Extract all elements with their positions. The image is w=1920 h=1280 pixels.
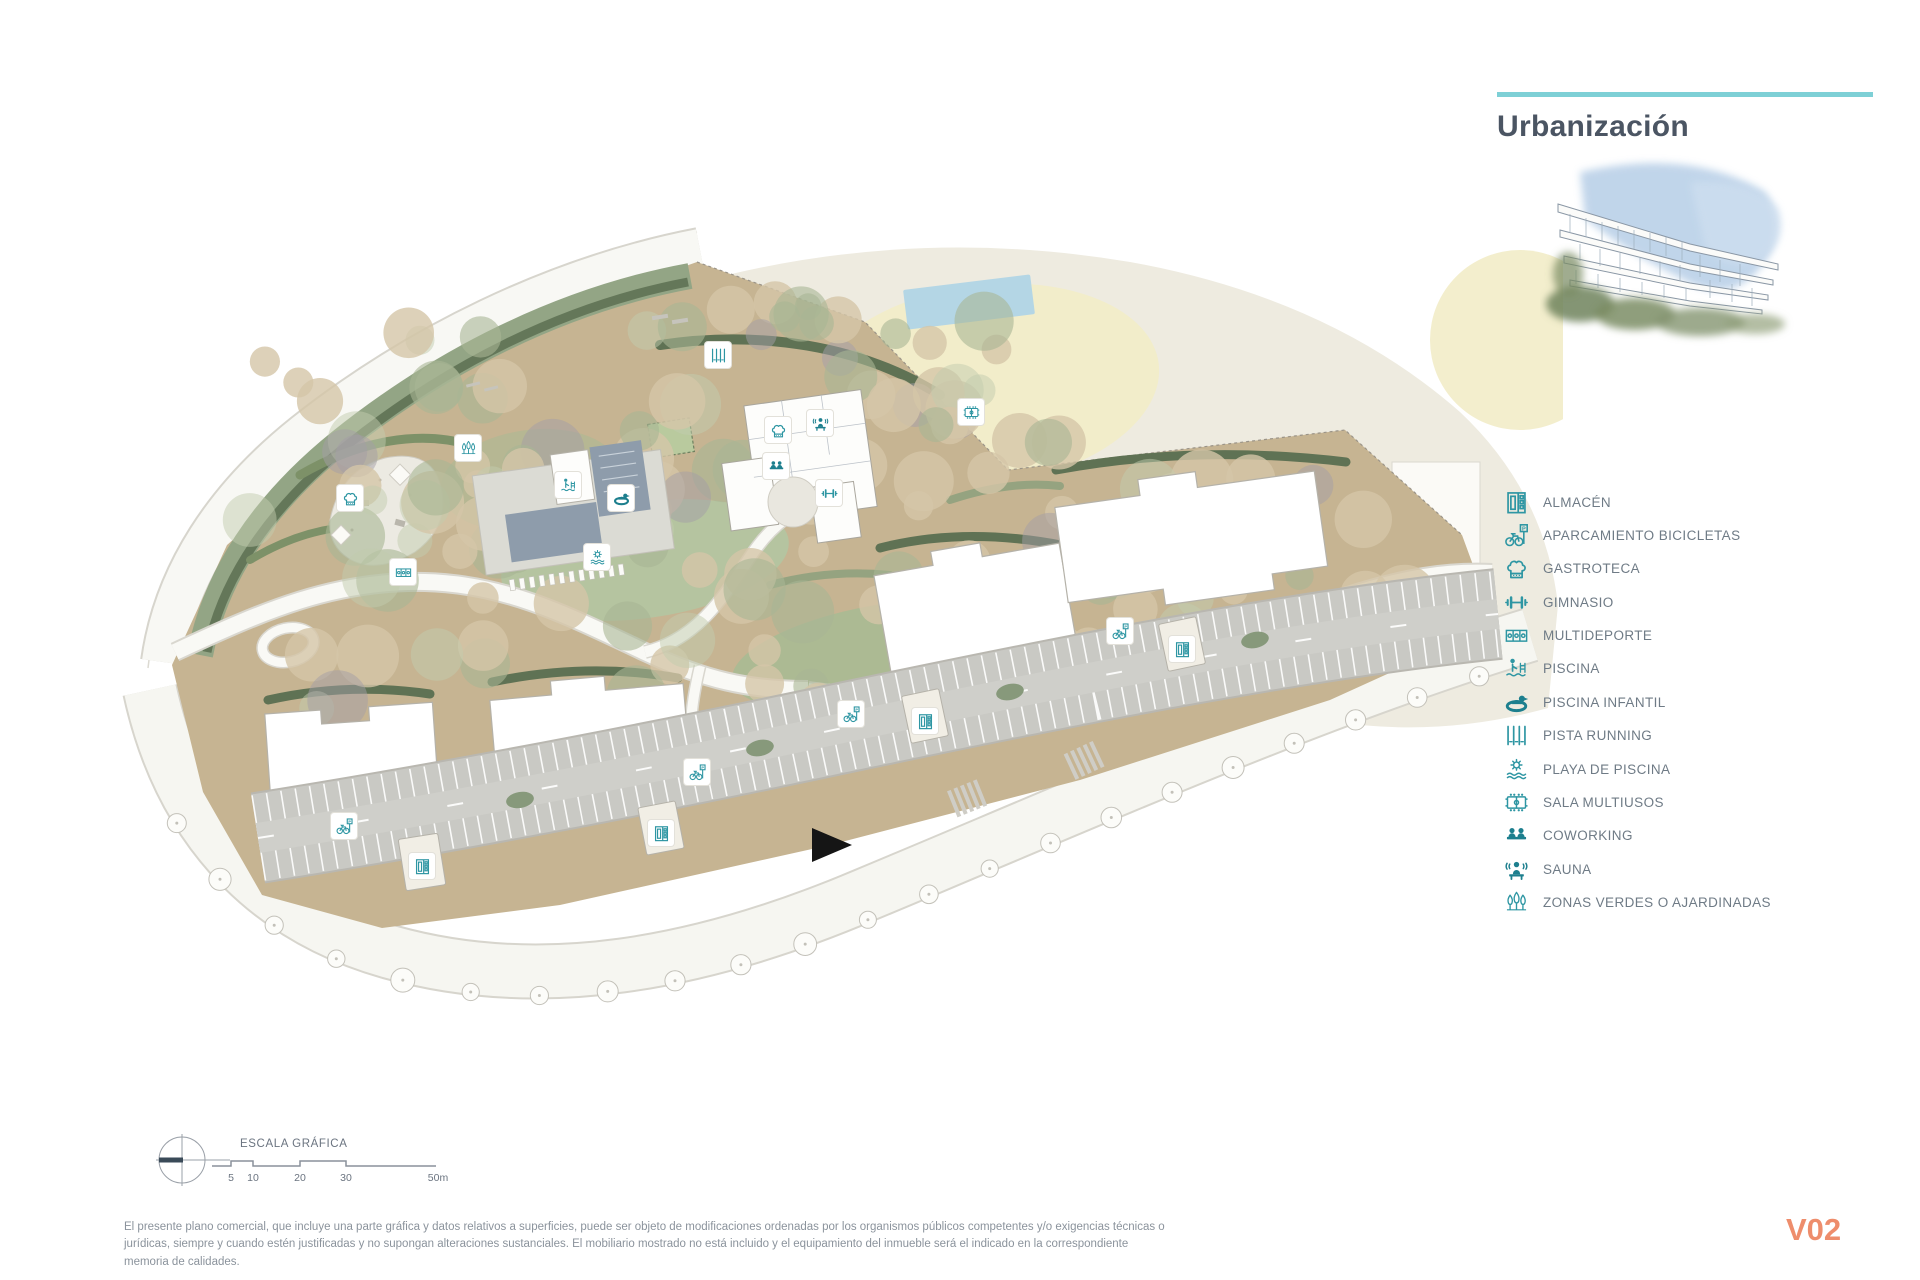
- legend-item-label: PISCINA INFANTIL: [1543, 695, 1666, 710]
- legend-item-label: GIMNASIO: [1543, 595, 1614, 610]
- sauna-icon: [811, 414, 830, 433]
- gastroteca-icon: [769, 421, 788, 440]
- bike-parking-icon: [335, 817, 354, 836]
- almacen-icon: [916, 712, 935, 731]
- sala-multiusos-map-icon: [958, 399, 984, 425]
- almacen-map-icon: [912, 708, 938, 734]
- almacen-icon: [652, 824, 671, 843]
- accent-rule: [1497, 92, 1873, 97]
- legend-item-label: PISCINA: [1543, 661, 1600, 676]
- legend-item: APARCAMIENTO BICICLETAS: [1503, 522, 1903, 548]
- legend-item-label: SAUNA: [1543, 862, 1592, 877]
- legend-item-label: PISTA RUNNING: [1543, 728, 1652, 743]
- version-label: V02: [1786, 1212, 1841, 1248]
- north-compass: [156, 1134, 230, 1186]
- gimnasio-icon: [1503, 589, 1530, 616]
- sala-multiusos-icon: [1503, 789, 1530, 816]
- bike-parking-icon: [842, 705, 861, 724]
- bike-parking-map-icon: [331, 813, 357, 839]
- legend-item: PISTA RUNNING: [1503, 723, 1903, 749]
- piscina-icon: [1503, 655, 1530, 682]
- scale-block: ESCALA GRÁFICA 5 10 20 30 50m: [100, 1118, 520, 1208]
- scale-tick: 10: [247, 1172, 259, 1184]
- bike-parking-map-icon: [838, 701, 864, 727]
- multideporte-icon: [1503, 622, 1530, 649]
- legend-item-label: GASTROTECA: [1543, 561, 1640, 576]
- zonas-verdes-icon: [459, 439, 478, 458]
- legend-item: MULTIDEPORTE: [1503, 623, 1903, 649]
- bike-parking-map-icon: [1107, 618, 1133, 644]
- piscina-infantil-map-icon: [608, 485, 634, 511]
- coworking-map-icon: [763, 453, 789, 479]
- piscina-infantil-icon: [612, 489, 631, 508]
- zonas-verdes-icon: [1503, 889, 1530, 916]
- sala-multiusos-icon: [962, 403, 981, 422]
- legend-item: ZONAS VERDES O AJARDINADAS: [1503, 890, 1903, 916]
- legend-item: GIMNASIO: [1503, 589, 1903, 615]
- scale-title: ESCALA GRÁFICA: [240, 1138, 347, 1150]
- pista-running-icon: [709, 346, 728, 365]
- legend-item-label: APARCAMIENTO BICICLETAS: [1543, 528, 1741, 543]
- disclaimer-text: El presente plano comercial, que incluye…: [124, 1219, 1176, 1271]
- legend-item: SALA MULTIUSOS: [1503, 790, 1903, 816]
- multideporte-map-icon: [390, 559, 416, 585]
- legend-item: COWORKING: [1503, 823, 1903, 849]
- almacen-map-icon: [648, 820, 674, 846]
- building-rendering: [1540, 152, 1816, 358]
- gastroteca-map-icon: [337, 485, 363, 511]
- almacen-map-icon: [1169, 636, 1195, 662]
- gastroteca-icon: [1503, 555, 1530, 582]
- gimnasio-map-icon: [816, 480, 842, 506]
- legend-item-label: PLAYA DE PISCINA: [1543, 762, 1670, 777]
- scale-tick: 5: [228, 1172, 234, 1184]
- scale-bar: [212, 1161, 436, 1166]
- gastroteca-icon: [341, 489, 360, 508]
- gimnasio-icon: [820, 484, 839, 503]
- legend-item: ALMACÉN: [1503, 489, 1903, 515]
- legend-item-label: ZONAS VERDES O AJARDINADAS: [1543, 895, 1771, 910]
- legend-item-label: SALA MULTIUSOS: [1543, 795, 1664, 810]
- legend-item: PISCINA: [1503, 656, 1903, 682]
- petanque-circle: [768, 477, 818, 527]
- almacen-icon: [413, 857, 432, 876]
- bike-parking-icon: [688, 763, 707, 782]
- page-title: Urbanización: [1497, 110, 1689, 144]
- almacen-map-icon: [409, 853, 435, 879]
- bike-parking-icon: [1503, 522, 1530, 549]
- legend: ALMACÉN APARCAMIENTO BICICLETAS GASTROTE…: [1503, 489, 1903, 923]
- almacen-icon: [1503, 489, 1530, 516]
- legend-item-label: MULTIDEPORTE: [1543, 628, 1652, 643]
- scale-tick: 50m: [428, 1172, 448, 1184]
- gastroteca-map-icon: [765, 417, 791, 443]
- coworking-icon: [1503, 822, 1530, 849]
- piscina-infantil-icon: [1503, 689, 1530, 716]
- pista-running-map-icon: [705, 342, 731, 368]
- playa-piscina-icon: [588, 548, 607, 567]
- legend-item-label: ALMACÉN: [1543, 495, 1611, 510]
- legend-item: PLAYA DE PISCINA: [1503, 756, 1903, 782]
- playa-piscina-icon: [1503, 756, 1530, 783]
- sauna-icon: [1503, 856, 1530, 883]
- pista-running-icon: [1503, 722, 1530, 749]
- sauna-map-icon: [807, 410, 833, 436]
- legend-item: SAUNA: [1503, 856, 1903, 882]
- legend-item: PISCINA INFANTIL: [1503, 689, 1903, 715]
- coworking-icon: [767, 457, 786, 476]
- zonas-verdes-map-icon: [455, 435, 481, 461]
- multideporte-icon: [394, 563, 413, 582]
- playa-piscina-map-icon: [584, 544, 610, 570]
- piscina-map-icon: [555, 472, 581, 498]
- bike-parking-icon: [1111, 622, 1130, 641]
- piscina-icon: [559, 476, 578, 495]
- bike-parking-map-icon: [684, 759, 710, 785]
- legend-item: GASTROTECA: [1503, 556, 1903, 582]
- scale-tick: 30: [340, 1172, 352, 1184]
- legend-item-label: COWORKING: [1543, 828, 1633, 843]
- scale-tick: 20: [294, 1172, 306, 1184]
- almacen-icon: [1173, 640, 1192, 659]
